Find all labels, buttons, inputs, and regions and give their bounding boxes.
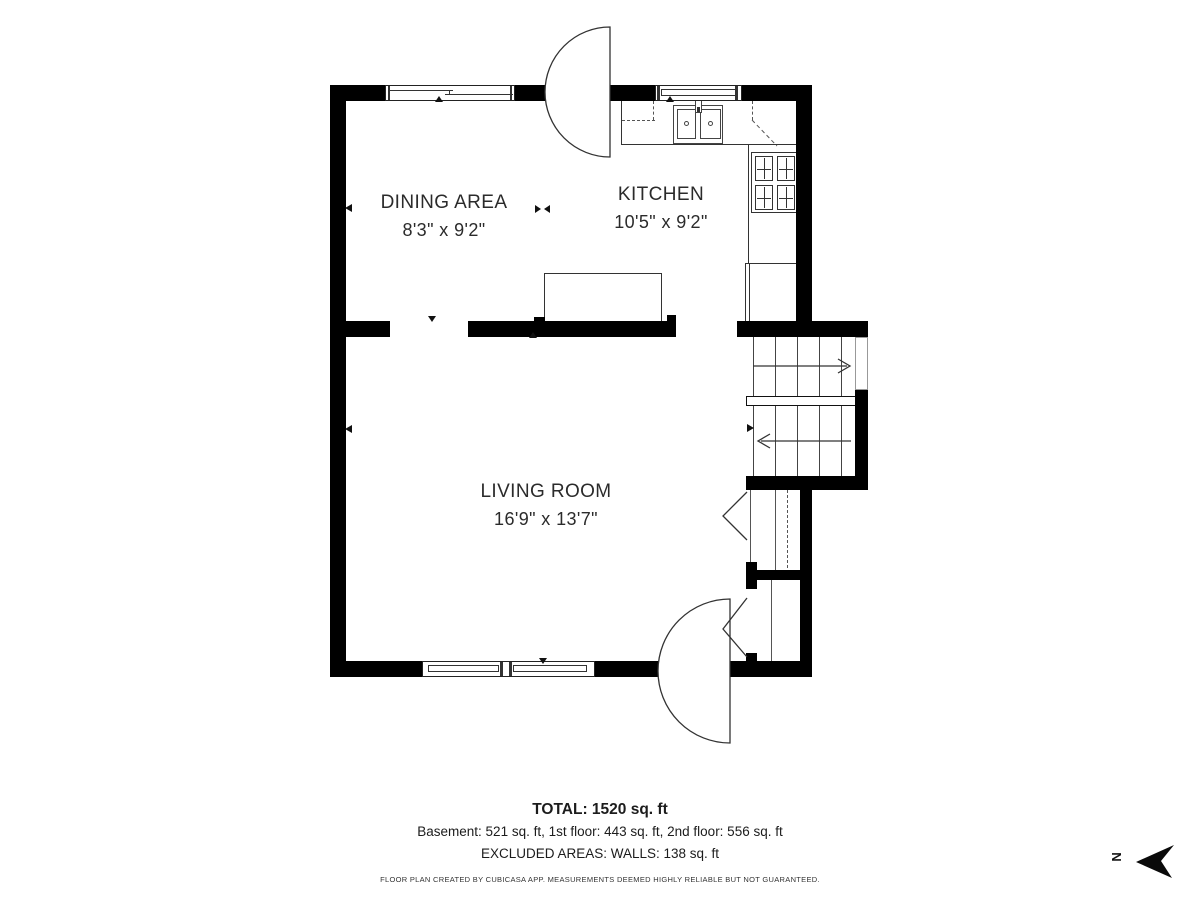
excluded-areas-text: EXCLUDED AREAS: WALLS: 138 sq. ft xyxy=(150,846,1050,861)
upper-cabinet-dashed-line xyxy=(752,101,753,120)
wall-kitchen-right xyxy=(796,85,812,337)
room-label-living: LIVING ROOM xyxy=(436,481,656,503)
stair-cut-dashed-line xyxy=(787,490,788,568)
marker-icon xyxy=(539,658,547,664)
closet-door-open xyxy=(723,492,747,540)
kitchen-counter-left-edge xyxy=(621,99,622,145)
upper-cabinet-dashed-line xyxy=(653,101,654,120)
stair-tread-line xyxy=(753,406,754,476)
room-dims-dining: 8'3" x 9'2" xyxy=(334,219,554,241)
stair-handrail xyxy=(746,396,857,406)
stove-burner xyxy=(755,156,773,181)
window-pane-line xyxy=(445,94,513,95)
stairs-wall-opening xyxy=(855,337,868,390)
sink-faucet-base xyxy=(697,107,700,112)
stair-tread-line xyxy=(841,406,842,476)
stair-tread-line xyxy=(753,337,754,396)
room-dims-kitchen: 10'5" x 9'2" xyxy=(551,211,771,233)
basement-stair-stringer xyxy=(775,490,776,570)
marker-icon xyxy=(529,332,537,338)
upper-cabinet-dashed-diagonal xyxy=(752,120,777,146)
stair-tread-line xyxy=(797,406,798,476)
window-end-bar xyxy=(388,86,390,100)
wall-middle-segment xyxy=(330,321,390,337)
stove-burner xyxy=(777,185,795,210)
marker-icon xyxy=(747,424,754,432)
kitchen-counter-front-edge xyxy=(621,144,796,145)
total-area-text: TOTAL: 1520 sq. ft xyxy=(150,801,1050,819)
floor-breakdown-text: Basement: 521 sq. ft, 1st floor: 443 sq.… xyxy=(150,824,1050,839)
stair-tread-line xyxy=(775,337,776,396)
stair-tread-line xyxy=(775,406,776,476)
stair-tread-line xyxy=(797,337,798,396)
window-mullion-bar xyxy=(500,662,503,676)
stove-burner xyxy=(777,156,795,181)
wall-entry-right xyxy=(800,484,812,677)
sink-drain-right xyxy=(708,121,713,126)
door-threshold-line xyxy=(546,98,610,99)
north-letter: N xyxy=(1108,849,1124,865)
wall-end-cap xyxy=(667,315,676,331)
stair-tread-line xyxy=(819,406,820,476)
basement-stair-edge xyxy=(750,490,751,570)
wall-nub xyxy=(746,562,757,589)
closet-divider-line xyxy=(771,580,772,661)
wall-middle-segment xyxy=(737,321,868,337)
marker-icon xyxy=(666,96,674,102)
stairs-up-arrowhead xyxy=(838,359,850,373)
stair-tread-line xyxy=(841,337,842,396)
room-dims-living: 16'9" x 13'7" xyxy=(436,508,656,530)
window-mullion-bar xyxy=(509,662,512,676)
sink-drain-left xyxy=(684,121,689,126)
stair-tread-line xyxy=(819,337,820,396)
window-pane xyxy=(428,665,499,672)
marker-icon xyxy=(428,316,436,322)
refrigerator-door-line xyxy=(749,264,750,323)
door-threshold-line xyxy=(658,662,730,663)
window-pane-line xyxy=(389,90,453,91)
wall-exterior-left xyxy=(330,85,346,677)
disclaimer-text: FLOOR PLAN CREATED BY CUBICASA APP. MEAS… xyxy=(150,875,1050,884)
refrigerator xyxy=(745,263,798,324)
wall-nub xyxy=(746,653,757,665)
window-end-bar xyxy=(735,86,738,100)
linework-overlay xyxy=(0,0,1200,900)
door-threshold-line xyxy=(546,86,610,87)
closet-door-open xyxy=(723,598,747,657)
kitchen-island-counter xyxy=(544,273,662,323)
door-threshold-line xyxy=(658,674,730,675)
wall-end-cap xyxy=(534,317,545,331)
marker-icon xyxy=(435,96,443,102)
wall-stairs-right xyxy=(855,390,868,480)
window-dining-sliding xyxy=(385,85,515,101)
room-label-kitchen: KITCHEN xyxy=(551,184,771,206)
window-pane-step xyxy=(449,90,450,95)
marker-icon xyxy=(345,425,352,433)
window-end-bar xyxy=(657,86,660,100)
stairs-down-arrowhead xyxy=(758,434,770,448)
north-arrow-icon xyxy=(1136,845,1174,878)
upper-cabinet-dashed-line xyxy=(622,120,655,121)
wall-middle-segment xyxy=(468,321,676,337)
floor-plan-canvas: DINING AREA 8'3" x 9'2" KITCHEN 10'5" x … xyxy=(0,0,1200,900)
window-pane xyxy=(513,665,587,672)
window-pane xyxy=(661,89,736,96)
window-end-bar xyxy=(510,86,512,100)
room-label-dining: DINING AREA xyxy=(334,192,554,214)
